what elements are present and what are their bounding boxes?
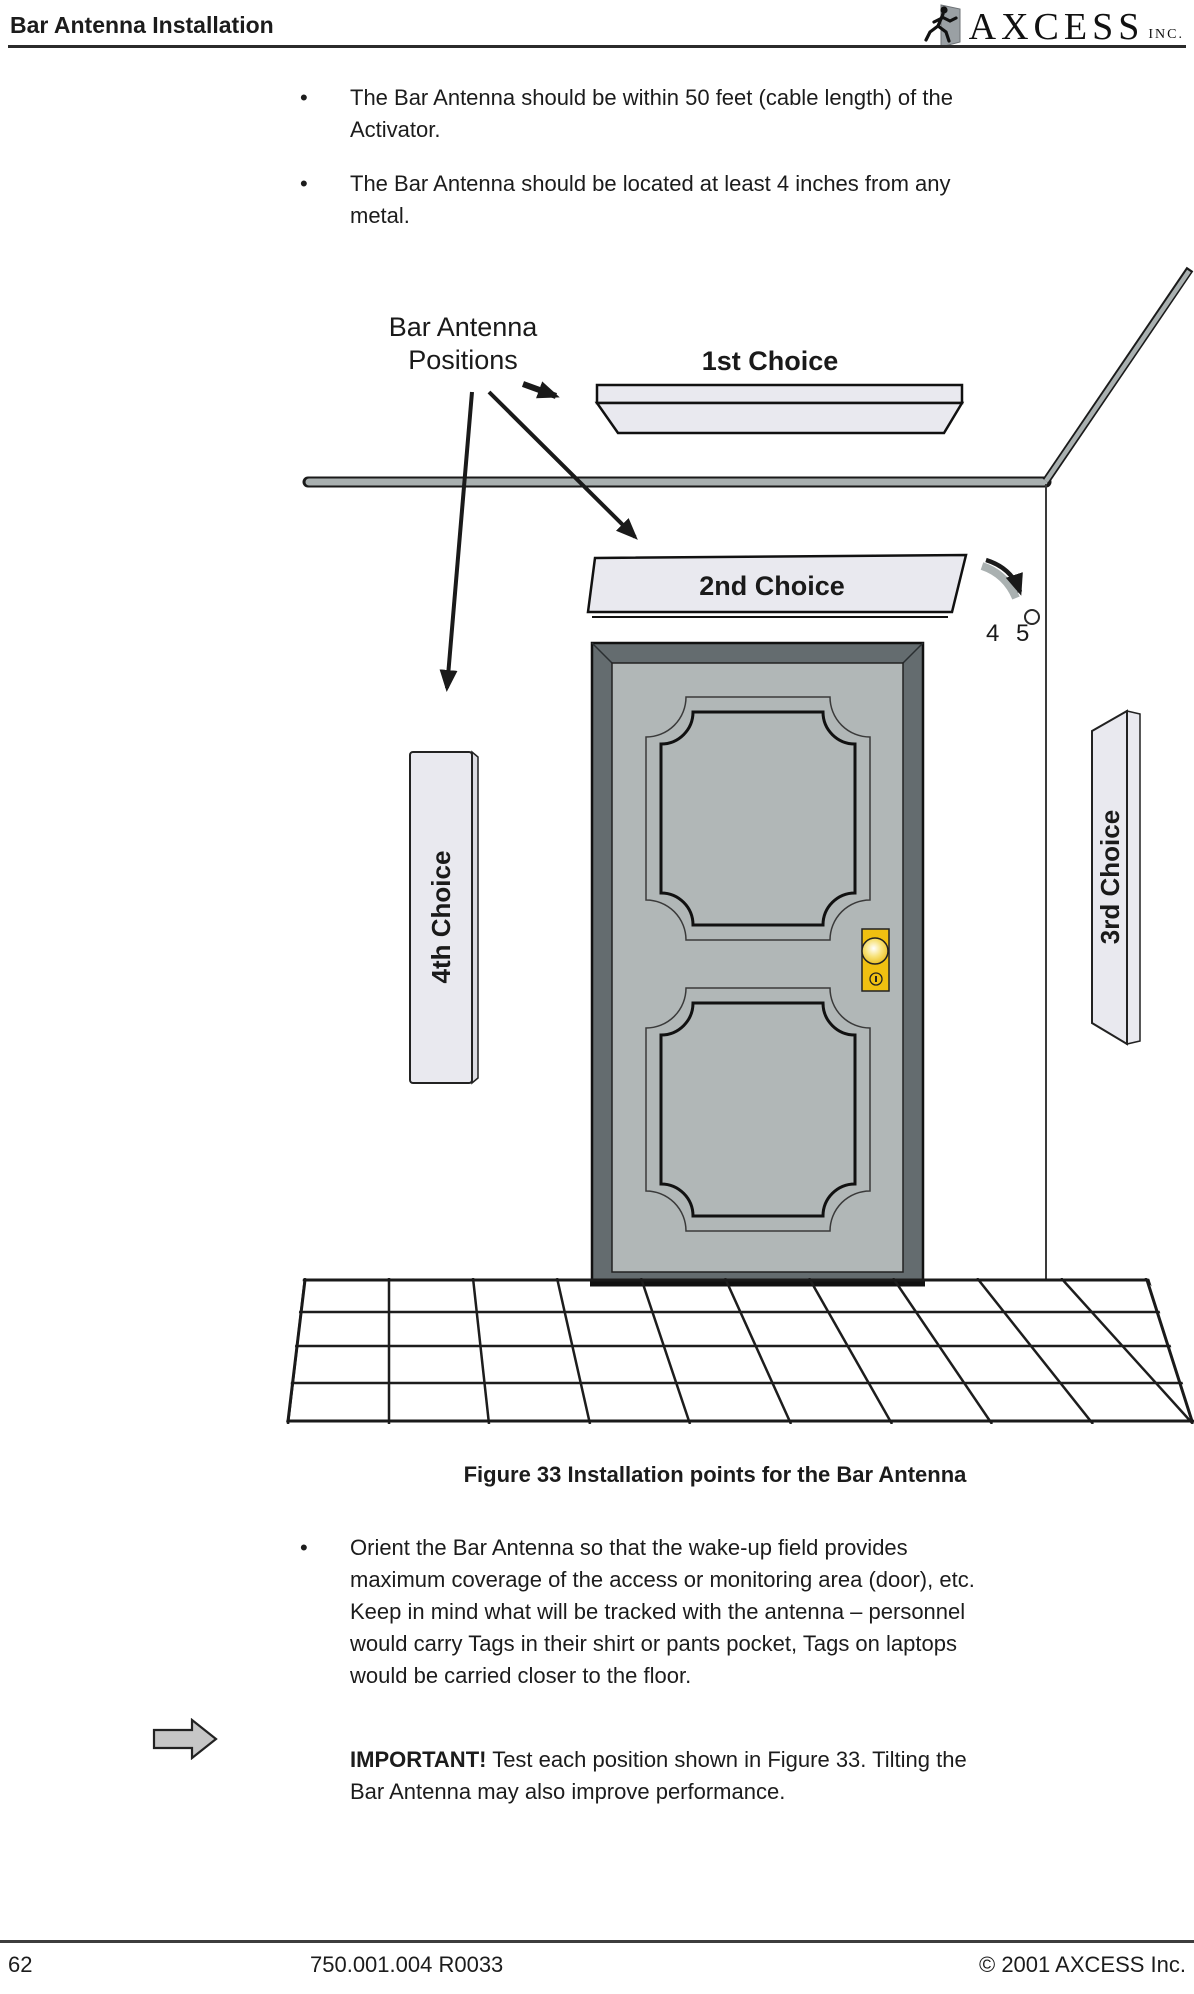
- bullet-dot: •: [300, 82, 350, 146]
- manual-page: Bar Antenna Installation AXCESS INC. • T…: [0, 0, 1194, 1994]
- door-knob: [862, 929, 889, 991]
- door: [590, 643, 925, 1284]
- bullet-metal-distance: • The Bar Antenna should be located at l…: [300, 168, 1140, 232]
- figure-caption: Figure 33 Installation points for the Ba…: [300, 1462, 1130, 1488]
- bullet-text: The Bar Antenna should be within 50 feet…: [350, 82, 1140, 146]
- company-logo: AXCESS INC.: [917, 2, 1184, 48]
- label-2nd-choice: 2nd Choice: [699, 571, 845, 601]
- floor-grid: [240, 1278, 1194, 1424]
- bullet-dot: •: [300, 1532, 350, 1692]
- logo-suffix-text: INC.: [1148, 27, 1184, 43]
- figure-33-installation-diagram: 1st Choice Bar Antenna Positions 2nd Cho…: [240, 255, 1194, 1455]
- footer-rule: [0, 1940, 1194, 1943]
- bullet-dot: •: [300, 168, 350, 232]
- footer-doc-number: 750.001.004 R0033: [310, 1952, 503, 1978]
- footer-page-number: 62: [8, 1952, 32, 1978]
- running-man-door-icon: [917, 2, 969, 48]
- bullet-text: Orient the Bar Antenna so that the wake-…: [350, 1532, 1140, 1692]
- label-45-degrees: 4 5: [986, 620, 1034, 647]
- important-note: IMPORTANT! Test each position shown in F…: [350, 1744, 1150, 1808]
- installation-diagram-svg: 1st Choice Bar Antenna Positions 2nd Cho…: [240, 255, 1194, 1450]
- label-positions-line1: Bar Antenna: [389, 312, 539, 342]
- label-3rd-choice: 3rd Choice: [1095, 810, 1125, 944]
- bar-antenna-1st-choice: [597, 385, 962, 433]
- door-face: [612, 663, 903, 1272]
- footer-copyright: © 2001 AXCESS Inc.: [979, 1952, 1186, 1978]
- header-rule: [8, 45, 1186, 48]
- important-label: IMPORTANT!: [350, 1747, 486, 1772]
- tilt-45-arrow: [982, 560, 1039, 624]
- bullet-orient-antenna: • Orient the Bar Antenna so that the wak…: [300, 1532, 1140, 1692]
- label-4th-choice: 4th Choice: [426, 851, 456, 984]
- logo-brand-text: AXCESS: [969, 6, 1145, 48]
- label-1st-choice: 1st Choice: [702, 346, 839, 376]
- important-pointer: [152, 1718, 218, 1765]
- bullet-text: The Bar Antenna should be located at lea…: [350, 168, 1140, 232]
- bullet-cable-length: • The Bar Antenna should be within 50 fe…: [300, 82, 1140, 146]
- label-positions-line2: Positions: [408, 345, 518, 375]
- page-title: Bar Antenna Installation: [10, 12, 274, 39]
- block-arrow-icon: [152, 1718, 218, 1760]
